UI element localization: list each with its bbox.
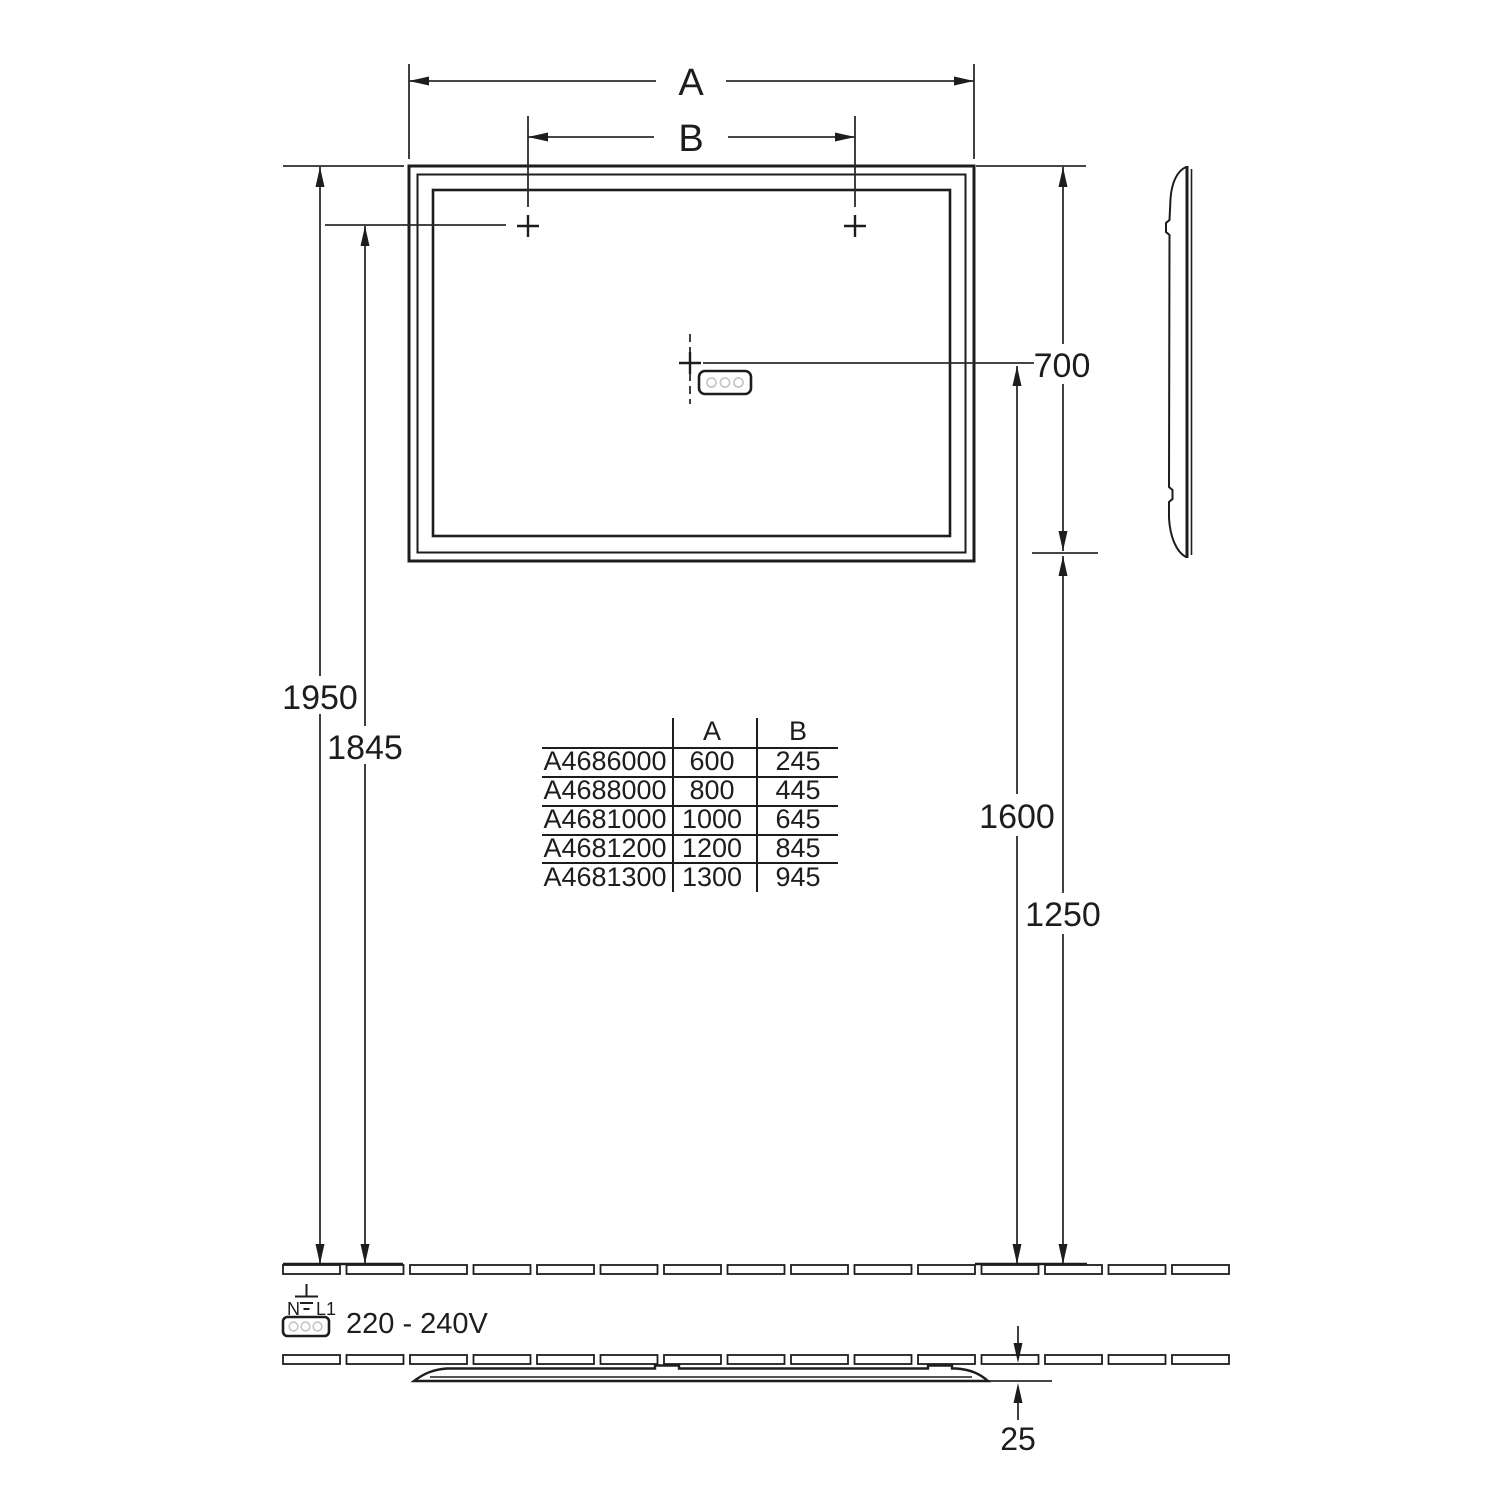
table-row: A4681000 1000 645 xyxy=(543,804,820,834)
dim-label-1600: 1600 xyxy=(979,798,1055,836)
dim-label-1250: 1250 xyxy=(1025,896,1101,934)
wall-hatch-segment xyxy=(347,1265,404,1274)
technical-drawing-canvas: A B 700 1250 1600 1950 xyxy=(0,0,1500,1500)
dim-mount-spacing-B: B xyxy=(528,118,855,160)
value-b: 245 xyxy=(775,746,820,776)
dim-total-height-1950: 1950 xyxy=(282,167,358,1264)
dim-label-B: B xyxy=(678,118,703,160)
mirror-side-view xyxy=(1166,166,1192,558)
wall-hatch-segment xyxy=(791,1265,848,1274)
value-a: 600 xyxy=(689,746,734,776)
value-b: 645 xyxy=(775,804,820,834)
table-row: A4681200 1200 845 xyxy=(543,833,820,863)
wall-hatch-segment xyxy=(537,1355,594,1364)
dim-label-700: 700 xyxy=(1034,347,1091,385)
wall-hatch-segment xyxy=(601,1265,658,1274)
wall-hatch-segment xyxy=(283,1265,340,1274)
wall-hatch-segment xyxy=(1045,1355,1102,1364)
value-a: 800 xyxy=(689,775,734,805)
wall-hatch-segment xyxy=(283,1355,340,1364)
article-number: A4681300 xyxy=(543,862,666,892)
table-row: A4681300 1300 945 xyxy=(543,862,820,892)
voltage-label: 220 - 240V xyxy=(346,1308,489,1340)
dim-bottom-height-1250: 1250 xyxy=(1025,556,1101,1264)
wall-hatch-segment xyxy=(918,1265,975,1274)
mirror-bottom-view xyxy=(414,1366,988,1382)
bottom-profile-outline xyxy=(414,1366,988,1382)
article-number: A4681200 xyxy=(543,833,666,863)
value-a: 1000 xyxy=(682,804,742,834)
value-b: 945 xyxy=(775,862,820,892)
power-connector-icon xyxy=(283,1317,329,1336)
value-b: 845 xyxy=(775,833,820,863)
dim-label-A: A xyxy=(678,62,704,104)
table-header-b: B xyxy=(789,716,807,746)
dim-control-height-1600: 1600 xyxy=(979,366,1055,1264)
table-row: A4688000 800 445 xyxy=(543,775,820,805)
table-row: A4686000 600 245 xyxy=(543,746,820,776)
article-number: A4688000 xyxy=(543,775,666,805)
side-profile-outline xyxy=(1166,167,1186,557)
wall-hatch-segment xyxy=(1172,1355,1229,1364)
control-center-cross-icon xyxy=(679,352,701,374)
dim-depth-25: 25 xyxy=(1000,1326,1036,1457)
wall-hatch-segment xyxy=(982,1355,1039,1364)
wall-hatch-segment xyxy=(1172,1265,1229,1274)
dim-mirror-height-700: 700 xyxy=(1034,167,1091,551)
wall-hatch-upper xyxy=(283,1265,1229,1274)
dim-width-A: A xyxy=(409,62,974,104)
wall-hatch-segment xyxy=(1109,1355,1166,1364)
value-a: 1200 xyxy=(682,833,742,863)
wall-hatch-segment xyxy=(664,1355,721,1364)
table-header-a: A xyxy=(703,716,721,746)
wall-hatch-segment xyxy=(474,1265,531,1274)
wall-hatch-segment xyxy=(728,1355,785,1364)
dim-label-1950: 1950 xyxy=(282,679,358,717)
wall-hatch-segment xyxy=(982,1265,1039,1274)
wall-hatch-segment xyxy=(728,1265,785,1274)
extension-lines xyxy=(283,64,1098,1381)
wall-hatch-segment xyxy=(1109,1265,1166,1274)
wall-hatch-segment xyxy=(474,1355,531,1364)
wall-hatch-segment xyxy=(347,1355,404,1364)
value-a: 1300 xyxy=(682,862,742,892)
drawing-svg: A B 700 1250 1600 1950 xyxy=(0,0,1500,1500)
wall-hatch-segment xyxy=(664,1265,721,1274)
mount-point-right-icon xyxy=(844,215,866,237)
wall-hatch-segment xyxy=(537,1265,594,1274)
power-connection: N L1 220 - 240V xyxy=(283,1284,489,1340)
wall-hatch-segment xyxy=(601,1355,658,1364)
dim-label-1845: 1845 xyxy=(327,729,403,767)
article-number: A4681000 xyxy=(543,804,666,834)
size-table: A B A4686000 600 245 A4688000 800 445 A4… xyxy=(542,716,838,892)
wall-hatch-segment xyxy=(918,1355,975,1364)
mount-point-left-icon xyxy=(517,215,539,237)
dim-label-25: 25 xyxy=(1000,1421,1036,1457)
dim-mount-height-1845: 1845 xyxy=(327,226,403,1264)
wall-hatch-segment xyxy=(855,1355,912,1364)
wall-hatch-segment xyxy=(410,1265,467,1274)
wall-hatch-lower xyxy=(283,1355,1229,1364)
wall-hatch-segment xyxy=(410,1355,467,1364)
article-number: A4686000 xyxy=(543,746,666,776)
wall-hatch-segment xyxy=(855,1265,912,1274)
control-panel-icon xyxy=(679,334,751,404)
wall-hatch-segment xyxy=(791,1355,848,1364)
wall-hatch-segment xyxy=(1045,1265,1102,1274)
value-b: 445 xyxy=(775,775,820,805)
